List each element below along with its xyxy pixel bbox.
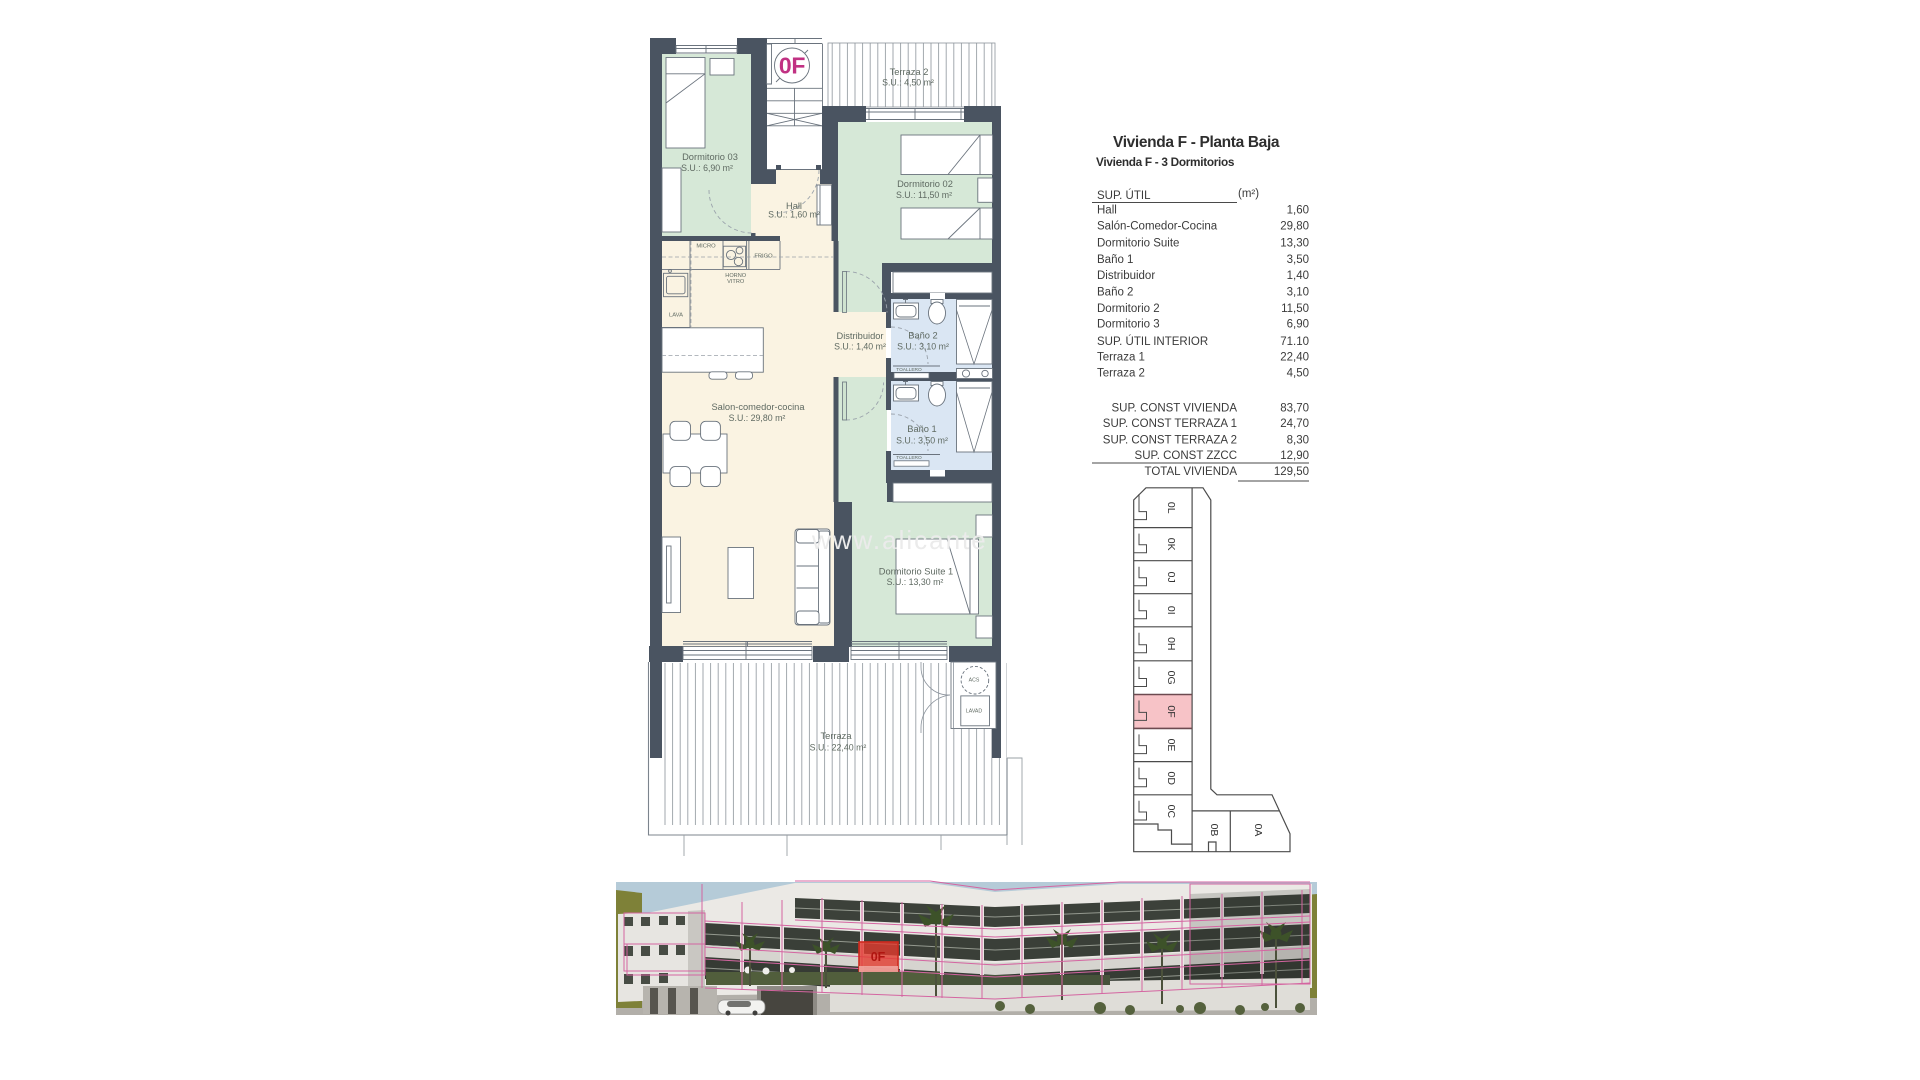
svg-text:Salón-Comedor-Cocina: Salón-Comedor-Cocina <box>1097 221 1218 233</box>
svg-text:0H: 0H <box>1165 637 1177 650</box>
svg-text:1,60: 1,60 <box>1287 205 1309 217</box>
svg-text:Dormitorio 02: Dormitorio 02 <box>897 179 953 189</box>
svg-text:VITRO: VITRO <box>727 279 745 285</box>
svg-text:S.U.: 1,60 m²: S.U.: 1,60 m² <box>768 210 820 220</box>
svg-text:12,90: 12,90 <box>1280 450 1309 462</box>
svg-text:24,70: 24,70 <box>1280 418 1309 430</box>
svg-text:MICRO: MICRO <box>696 244 716 250</box>
svg-text:SUP. ÚTIL: SUP. ÚTIL <box>1097 189 1151 202</box>
svg-text:Vivienda F - Planta Baja: Vivienda F - Planta Baja <box>1113 134 1280 151</box>
svg-text:Baño 1: Baño 1 <box>1097 254 1133 266</box>
svg-text:Dormitorio 3: Dormitorio 3 <box>1097 318 1160 330</box>
svg-text:Dormitorio 2: Dormitorio 2 <box>1097 303 1160 315</box>
svg-text:71.10: 71.10 <box>1280 336 1309 348</box>
svg-text:www.alicante: www.alicante <box>811 525 988 555</box>
svg-text:Vivienda F - 3 Dormitorios: Vivienda F - 3 Dormitorios <box>1096 155 1235 169</box>
svg-text:S.U.: 1,40 m²: S.U.: 1,40 m² <box>834 342 886 352</box>
svg-text:Distribuidor: Distribuidor <box>1097 270 1155 282</box>
svg-text:1,40: 1,40 <box>1287 270 1309 282</box>
svg-text:0G: 0G <box>1165 671 1177 685</box>
svg-text:S.U.: 4,50 m²: S.U.: 4,50 m² <box>882 78 934 88</box>
svg-text:SUP. CONST ZZCC: SUP. CONST ZZCC <box>1135 450 1237 462</box>
svg-text:FRIGO: FRIGO <box>754 254 773 260</box>
svg-text:TOALLERO: TOALLERO <box>896 367 922 373</box>
svg-text:SUP. CONST VIVIENDA: SUP. CONST VIVIENDA <box>1112 402 1238 414</box>
svg-text:0I: 0I <box>1165 606 1177 615</box>
svg-text:Dormitorio Suite 1: Dormitorio Suite 1 <box>879 567 953 577</box>
svg-text:Terraza 2: Terraza 2 <box>1097 368 1145 380</box>
svg-text:0L: 0L <box>1165 502 1177 514</box>
svg-text:0C: 0C <box>1165 805 1177 819</box>
svg-text:Terraza: Terraza <box>821 731 853 741</box>
svg-text:LAVAD: LAVAD <box>966 709 982 715</box>
svg-text:0K: 0K <box>1165 538 1177 551</box>
svg-text:(m²): (m²) <box>1238 188 1259 200</box>
svg-text:Hall: Hall <box>1097 205 1117 217</box>
svg-text:3,50: 3,50 <box>1287 254 1309 266</box>
svg-text:0B: 0B <box>1208 824 1220 837</box>
svg-text:TOALLERO: TOALLERO <box>896 455 922 461</box>
svg-text:6,90: 6,90 <box>1287 318 1309 330</box>
svg-text:LAVA: LAVA <box>669 313 683 319</box>
svg-text:129,50: 129,50 <box>1274 466 1309 478</box>
svg-text:0J: 0J <box>1165 572 1177 583</box>
svg-text:Terraza 2: Terraza 2 <box>890 67 929 77</box>
svg-text:Terraza 1: Terraza 1 <box>1097 352 1145 364</box>
svg-text:S.U.: 29,80 m²: S.U.: 29,80 m² <box>729 413 786 423</box>
svg-text:Dormitorio 03: Dormitorio 03 <box>682 152 738 162</box>
svg-text:3,10: 3,10 <box>1287 287 1309 299</box>
svg-text:TOTAL VIVIENDA: TOTAL VIVIENDA <box>1145 466 1238 478</box>
svg-text:0F: 0F <box>779 53 805 79</box>
svg-text:Salon-comedor-cocina: Salon-comedor-cocina <box>711 402 805 412</box>
svg-text:0A: 0A <box>1252 824 1264 837</box>
svg-text:S.U.: 13,30 m²: S.U.: 13,30 m² <box>887 577 944 587</box>
svg-text:0E: 0E <box>1165 739 1177 752</box>
svg-text:S.U.: 3,10 m²: S.U.: 3,10 m² <box>897 342 949 352</box>
svg-text:S.U.: 3,50 m²: S.U.: 3,50 m² <box>896 436 948 446</box>
svg-text:Baño 1: Baño 1 <box>907 424 936 434</box>
svg-text:Dormitorio Suite: Dormitorio Suite <box>1097 237 1179 249</box>
svg-text:ACS: ACS <box>969 678 980 684</box>
svg-text:11,50: 11,50 <box>1281 303 1309 315</box>
svg-text:13,30: 13,30 <box>1280 237 1309 249</box>
svg-text:29,80: 29,80 <box>1280 221 1309 233</box>
svg-text:SUP. CONST TERRAZA 1: SUP. CONST TERRAZA 1 <box>1103 418 1237 430</box>
svg-text:S.U.: 22,40 m²: S.U.: 22,40 m² <box>810 743 867 753</box>
svg-text:Distribuidor: Distribuidor <box>836 331 883 341</box>
svg-text:S.U.: 6,90 m²: S.U.: 6,90 m² <box>681 163 733 173</box>
svg-text:0F: 0F <box>1165 705 1177 717</box>
svg-text:SUP. ÚTIL INTERIOR: SUP. ÚTIL INTERIOR <box>1097 335 1208 348</box>
svg-text:4,50: 4,50 <box>1287 368 1309 380</box>
svg-text:83,70: 83,70 <box>1280 402 1309 414</box>
svg-text:22,40: 22,40 <box>1280 352 1309 364</box>
svg-text:0D: 0D <box>1165 771 1177 785</box>
svg-text:0F: 0F <box>871 950 886 964</box>
svg-text:Baño 2: Baño 2 <box>908 331 937 341</box>
svg-text:SUP. CONST TERRAZA 2: SUP. CONST TERRAZA 2 <box>1103 434 1237 446</box>
svg-text:S.U.: 11,50 m²: S.U.: 11,50 m² <box>896 190 952 200</box>
svg-text:8,30: 8,30 <box>1287 434 1309 446</box>
svg-text:Baño 2: Baño 2 <box>1097 287 1133 299</box>
